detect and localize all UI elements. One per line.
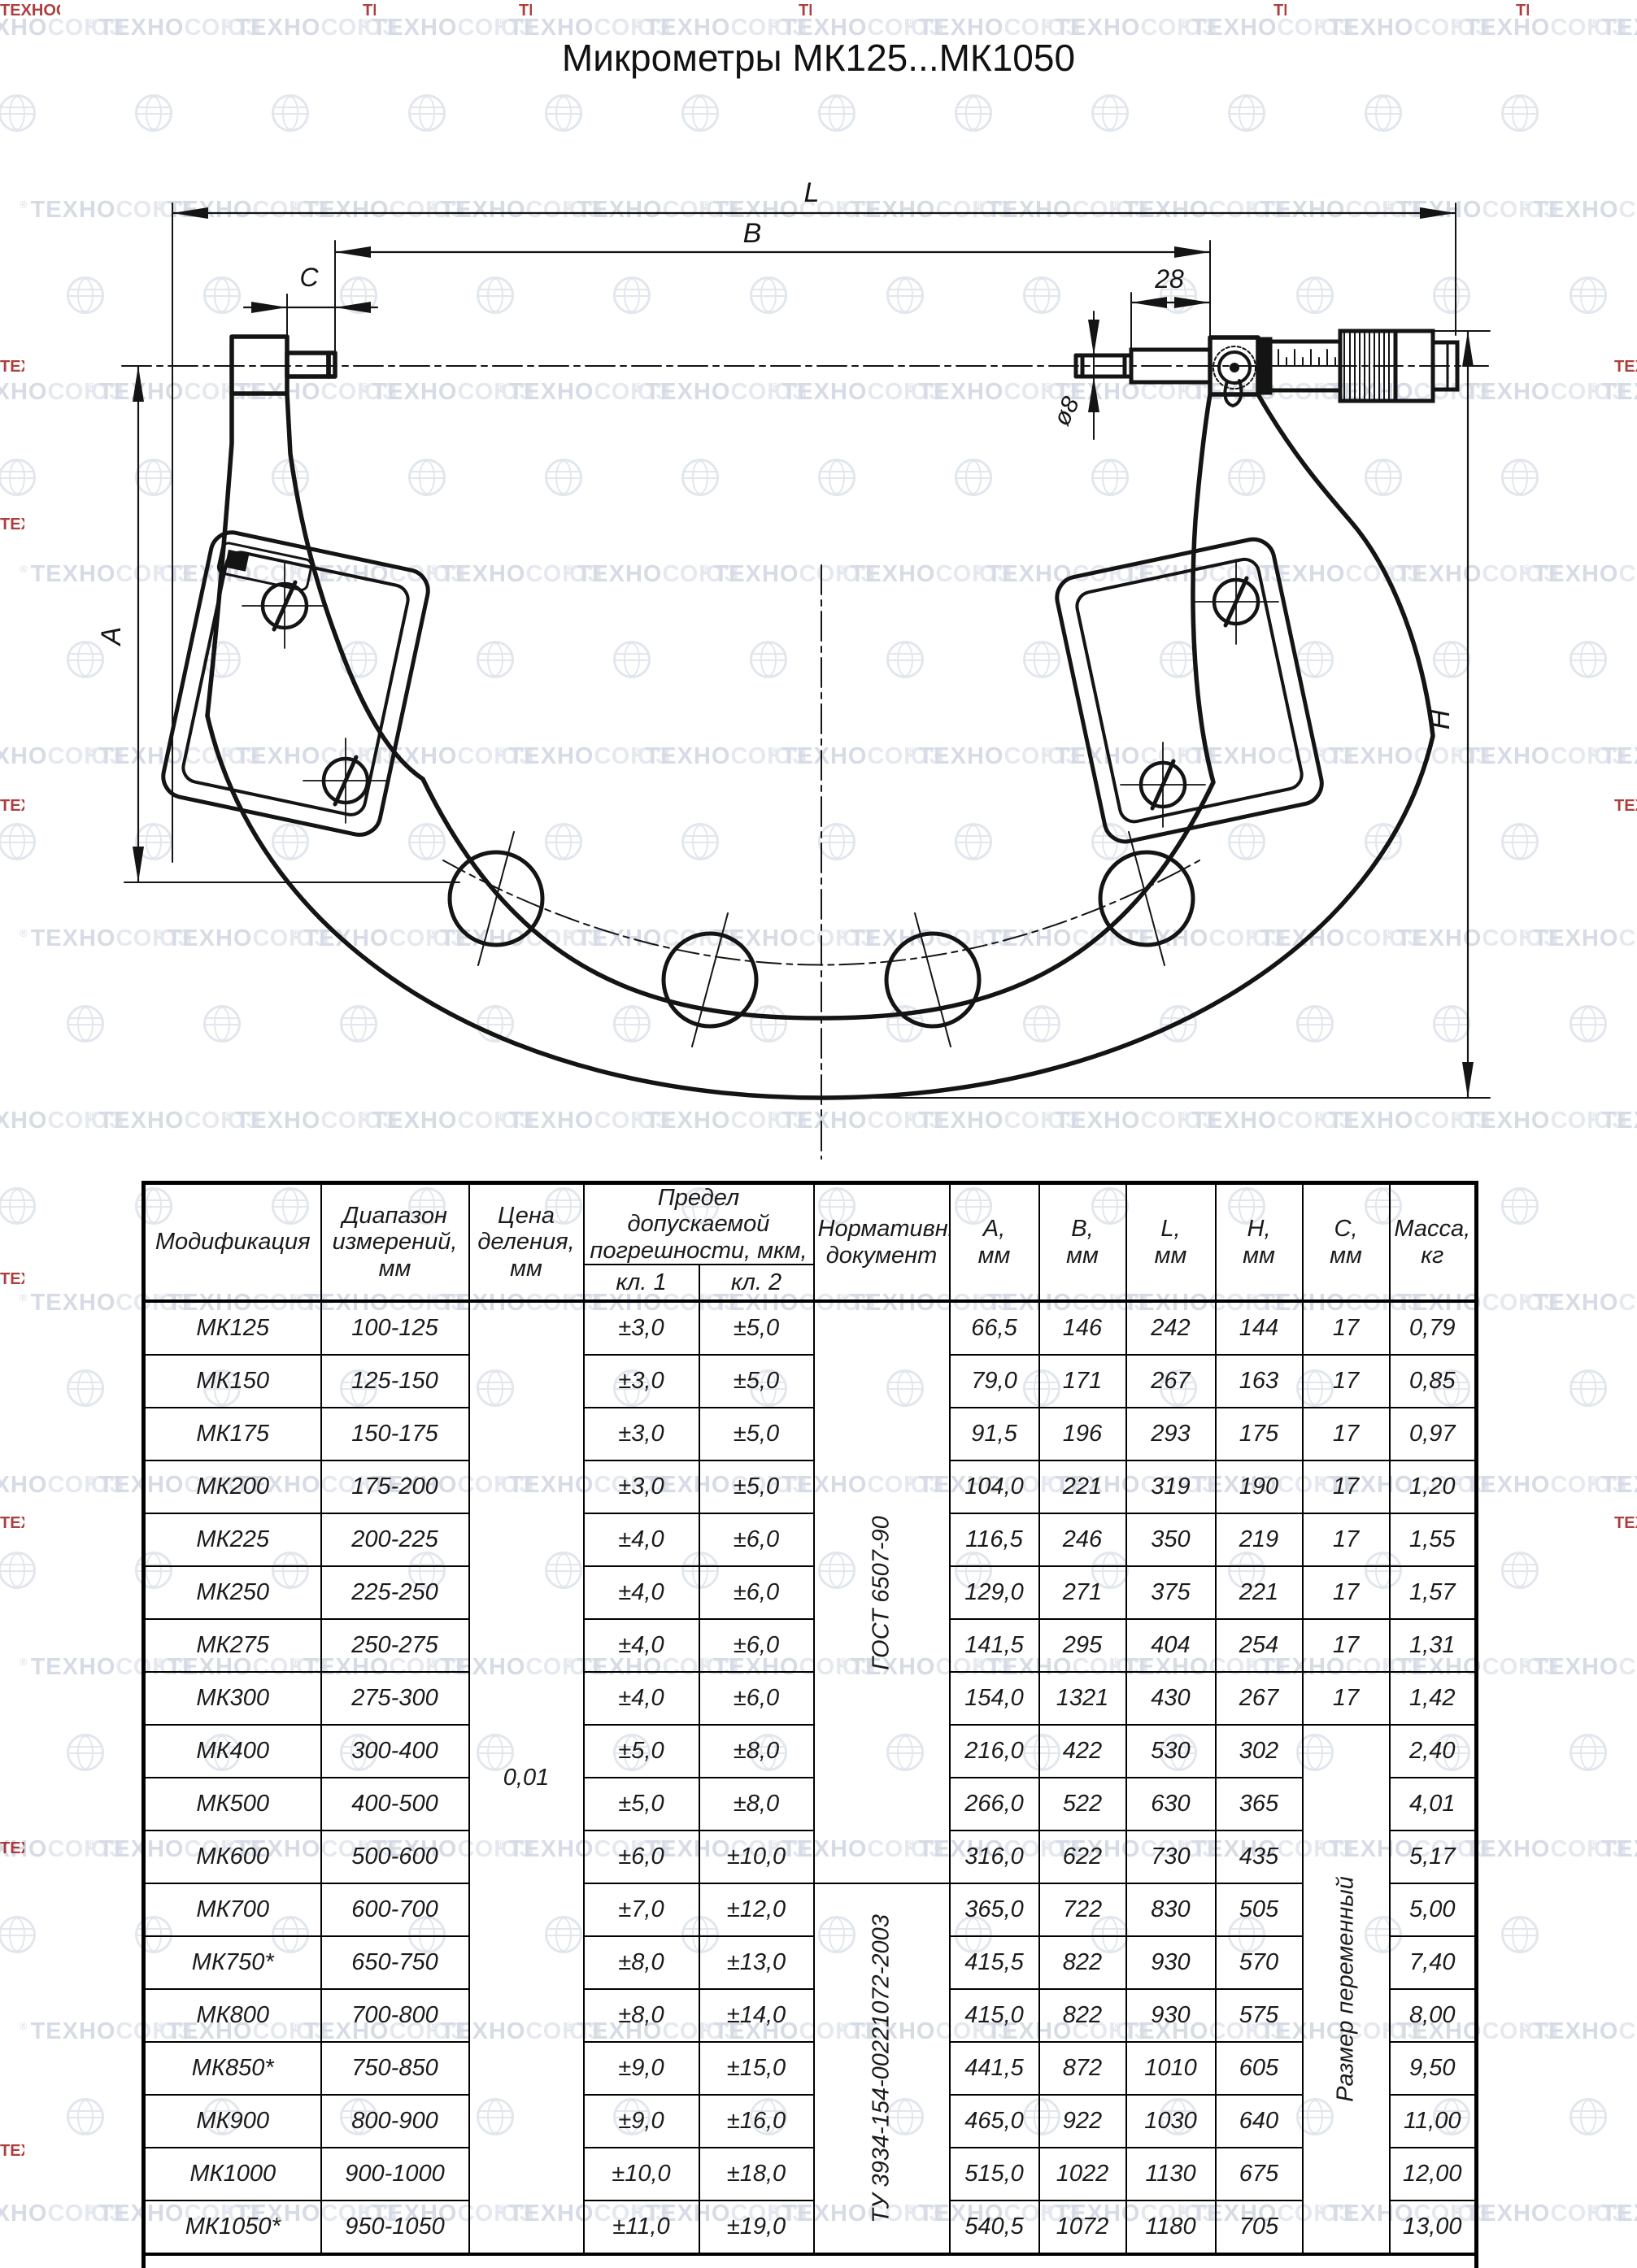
red-watermark-fragment: ТЕХНОСОЮЗ [1614,797,1637,816]
red-watermark-fragment: ТЕХНОСОЮЗ [0,2142,24,2161]
red-watermark-fragment: ТЕХНОСОЮЗ [799,2,812,21]
cell-class1: ±8,0 [584,1936,699,1989]
cell-h: 435 [1216,1831,1303,1883]
anvil-face [329,353,335,377]
watermark-text: ®ТЕХНОСОЮЗ [0,2201,124,2227]
globe-icon [1570,1369,1607,1407]
col-header-division: Цена деления, мм [469,1183,584,1302]
red-watermark-fragment: ТЕХНОСОЮЗ [519,2,532,21]
cell-l: 930 [1126,1989,1216,2042]
cell-range: 150-175 [321,1408,469,1460]
cell-h: 675 [1216,2148,1303,2201]
cell-h: 640 [1216,2095,1303,2148]
cell-mass: 9,50 [1390,2042,1477,2095]
screw [1194,559,1278,644]
cell-model: МК150 [144,1355,321,1408]
cell-model: МК1000 [144,2148,321,2201]
red-watermark-fragment: ТЕХНОСОЮЗ [1273,2,1287,21]
cell-b: 422 [1039,1725,1126,1778]
cell-class1: ±9,0 [584,2095,699,2148]
cell-model: МК850* [144,2042,321,2095]
cell-b: 822 [1039,1936,1126,1989]
cell-l: 319 [1126,1460,1216,1513]
cell-class1: ±7,0 [584,1883,699,1936]
bow-inner-edge [423,394,1213,1018]
dimension-labels: L В С 28 ø8 А Н [96,177,1456,729]
col-header-range: Диапазон измерений, мм [321,1183,469,1302]
cell-a: 116,5 [950,1513,1039,1566]
table-row: МК800700-800±8,0±14,0415,08229305758,00 [144,1989,1477,2042]
cell-h: 705 [1216,2201,1303,2254]
cell-class2: ±5,0 [699,1408,814,1460]
globe-icon [1501,1916,1539,1953]
anvil-tip [287,353,329,377]
red-watermark-fragment: ТЕХНОСОЮЗ [0,1514,24,1534]
cell-c: 17 [1303,1355,1390,1408]
cell-class2: ±15,0 [699,2042,814,2095]
red-watermark-fragment: ТЕХНОСОЮЗ [1614,1514,1637,1534]
table-row: МК400300-400±5,0±8,0216,0422530302Размер… [144,1725,1477,1778]
micrometer-drawing: L В С 28 ø8 А Н [0,0,1637,1171]
cell-b: 271 [1039,1566,1126,1619]
cell-h: 505 [1216,1883,1303,1936]
cell-l: 930 [1126,1936,1216,1989]
doc-gost-label: ГОСТ 6507-90 [869,1516,895,1670]
watermark-text: ®ТЕХНОСОЮЗ [1522,1290,1637,1317]
table-header: Модификация Диапазон измерений, мм Цена … [144,1183,1477,1302]
col-header-error: Предел допускаемой погрешности, мкм, [584,1183,814,1265]
table-body: МК125100-1250,01±3,0±5,0ГОСТ 6507-9066,5… [144,1301,1477,2268]
table-row: МК750*650-750±8,0±13,0415,58229305707,40 [144,1936,1477,1989]
cell-a: 365,0 [950,1883,1039,1936]
col-header-b: В, мм [1039,1183,1126,1302]
sleeve-ticks [1278,350,1335,366]
cell-class2: ±5,0 [699,1301,814,1355]
cell-mass: 0,79 [1390,1301,1477,1355]
table-row: МК250225-250±4,0±6,0129,0271375221171,57 [144,1566,1477,1619]
red-watermark-fragment: ТЕХНОСОЮЗ [1516,2,1529,21]
table-row: МК300275-300±4,0±6,0154,01321430267171,4… [144,1672,1477,1725]
cell-mass: 13,00 [1390,2201,1477,2254]
cell-class1: ±6,0 [584,1831,699,1883]
globe-icon [0,1187,36,1225]
cell-doc-gost: ГОСТ 6507-90 [814,1301,950,1883]
cell-c: 17 [1303,1408,1390,1460]
col-header-h: Н, мм [1216,1183,1303,1302]
cell-range: 700-800 [321,1989,469,2042]
globe-icon [0,1916,36,1953]
cell-class1: ±3,0 [584,1301,699,1355]
cell-class2: ±19,0 [699,2201,814,2254]
cell-range: 900-1000 [321,2148,469,2201]
cell-model: МК750* [144,1936,321,1989]
dim-label-28: 28 [1154,264,1184,294]
cell-a: 441,5 [950,2042,1039,2095]
watermark-text: ®ТЕХНОСОЮЗ [1522,1654,1637,1681]
cell-range: 300-400 [321,1725,469,1778]
table-row: МК1050*950-1050±11,0±19,0540,51072118070… [144,2201,1477,2254]
cell-b: 622 [1039,1831,1126,1883]
cell-mass: 5,00 [1390,1883,1477,1936]
right-insulation-plate [1053,535,1326,845]
cell-l: 1010 [1126,2042,1216,2095]
cell-a: 154,0 [950,1672,1039,1725]
cell-class1: ±4,0 [584,1566,699,1619]
plate-screws [242,559,1278,827]
watermark-text: ®ТЕХНОСОЮЗ [1522,2018,1637,2045]
cell-a: 141,5 [950,1619,1039,1672]
cell-model: МК225 [144,1513,321,1566]
cell-class2: ±5,0 [699,1460,814,1513]
table-footnote: * Микрометры выпускаются по заказу потре… [144,2254,1477,2268]
cell-a: 415,0 [950,1989,1039,2042]
table-row: МК275250-275±4,0±6,0141,5295404254171,31 [144,1619,1477,1672]
cell-class2: ±8,0 [699,1725,814,1778]
col-header-model: Модификация [144,1183,321,1302]
watermark-text: ®ТЕХНОСОЮЗ [0,1472,124,1499]
cell-l: 350 [1126,1513,1216,1566]
cell-range: 275-300 [321,1672,469,1725]
cell-h: 575 [1216,1989,1303,2042]
cell-b: 171 [1039,1355,1126,1408]
cell-l: 404 [1126,1619,1216,1672]
watermark-text: ®ТЕХНОСОЮЗ [1454,1472,1627,1499]
cell-b: 1022 [1039,2148,1126,2201]
table-row: МК125100-1250,01±3,0±5,0ГОСТ 6507-9066,5… [144,1301,1477,1355]
cell-model: МК175 [144,1408,321,1460]
cell-l: 530 [1126,1725,1216,1778]
footnote-row: * Микрометры выпускаются по заказу потре… [144,2254,1477,2268]
red-watermark-fragment: ТЕХНОСОЮЗ [0,358,24,377]
cell-h: 144 [1216,1301,1303,1355]
cell-c: 17 [1303,1619,1390,1672]
cell-mass: 12,00 [1390,2148,1477,2201]
cell-b: 221 [1039,1460,1126,1513]
cell-range: 750-850 [321,2042,469,2095]
cell-a: 91,5 [950,1408,1039,1460]
red-watermark-fragment: ТЕХНОСОЮЗ [0,516,24,535]
cell-mass: 2,40 [1390,1725,1477,1778]
cell-l: 730 [1126,1831,1216,1883]
cell-class1: ±5,0 [584,1778,699,1831]
doc-tu-label: ТУ 3934-154-00221072-2003 [869,1914,895,2223]
table-row: МК150125-150±3,0±5,079,0171267163170,85 [144,1355,1477,1408]
c-variable-label: Размер переменный [1333,1877,1360,2103]
cell-h: 219 [1216,1513,1303,1566]
watermark-text: ®ТЕХНОСОЮЗ [1454,1836,1627,1863]
cell-l: 242 [1126,1301,1216,1355]
table-row: МК1000900-1000±10,0±18,0515,010221130675… [144,2148,1477,2201]
red-watermark-fragment: ТЕХНОСОЮЗ [0,2,60,21]
red-watermark-fragment: ТЕХНОСОЮЗ [0,1270,24,1290]
cell-h: 190 [1216,1460,1303,1513]
cell-mass: 7,40 [1390,1936,1477,1989]
watermark-text: ®ТЕХНОСОЮЗ [1454,2201,1627,2227]
cell-mass: 1,42 [1390,1672,1477,1725]
col-header-class2: кл. 2 [699,1265,814,1301]
cell-model: МК800 [144,1989,321,2042]
cell-range: 800-900 [321,2095,469,2148]
cell-range: 500-600 [321,1831,469,1883]
cell-class2: ±10,0 [699,1831,814,1883]
watermark-text: ®ТЕХНОСОЮЗ [1591,1836,1637,1863]
table-row: МК900800-900±9,0±16,0465,0922103064011,0… [144,2095,1477,2148]
cell-model: МК900 [144,2095,321,2148]
cell-a: 216,0 [950,1725,1039,1778]
cell-mass: 11,00 [1390,2095,1477,2148]
cell-h: 570 [1216,1936,1303,1989]
cell-b: 1321 [1039,1672,1126,1725]
cell-range: 200-225 [321,1513,469,1566]
screw [1121,742,1205,827]
cell-model: МК400 [144,1725,321,1778]
cell-class2: ±18,0 [699,2148,814,2201]
cell-l: 293 [1126,1408,1216,1460]
cell-a: 415,5 [950,1936,1039,1989]
cell-class2: ±6,0 [699,1672,814,1725]
cell-range: 175-200 [321,1460,469,1513]
table-row: МК850*750-850±9,0±15,0441,587210106059,5… [144,2042,1477,2095]
cell-h: 175 [1216,1408,1303,1460]
cell-mass: 8,00 [1390,1989,1477,2042]
col-header-l: L, мм [1126,1183,1216,1302]
cell-range: 950-1050 [321,2201,469,2254]
cell-division-merged: 0,01 [469,1301,584,2254]
cell-class1: ±3,0 [584,1355,699,1408]
cell-model: МК275 [144,1619,321,1672]
cell-class2: ±12,0 [699,1883,814,1936]
cell-a: 316,0 [950,1831,1039,1883]
cell-a: 515,0 [950,2148,1039,2201]
cell-b: 722 [1039,1883,1126,1936]
cell-class1: ±10,0 [584,2148,699,2201]
cell-mass: 1,55 [1390,1513,1477,1566]
cell-class1: ±4,0 [584,1513,699,1566]
cell-class2: ±5,0 [699,1355,814,1408]
cell-mass: 5,17 [1390,1831,1477,1883]
cell-l: 1130 [1126,2148,1216,2201]
table-row: МК500400-500±5,0±8,0266,05226303654,01 [144,1778,1477,1831]
cell-class1: ±9,0 [584,2042,699,2095]
cell-range: 400-500 [321,1778,469,1831]
dim-label-L: L [804,177,820,208]
cell-c: 17 [1303,1301,1390,1355]
cell-model: МК125 [144,1301,321,1355]
cell-c: 17 [1303,1513,1390,1566]
cell-a: 129,0 [950,1566,1039,1619]
col-header-mass: Масса, кг [1390,1183,1477,1302]
globe-icon [67,2098,104,2135]
cell-class2: ±6,0 [699,1566,814,1619]
table-row: МК700600-700±7,0±12,0ТУ 3934-154-0022107… [144,1883,1477,1936]
cell-b: 522 [1039,1778,1126,1831]
cell-class1: ±3,0 [584,1408,699,1460]
cell-model: МК700 [144,1883,321,1936]
cell-model: МК1050* [144,2201,321,2254]
cell-h: 605 [1216,2042,1303,2095]
cell-a: 465,0 [950,2095,1039,2148]
cell-b: 922 [1039,2095,1126,2148]
cell-h: 365 [1216,1778,1303,1831]
cell-l: 267 [1126,1355,1216,1408]
cell-class1: ±5,0 [584,1725,699,1778]
dim-label-C: С [299,263,319,292]
globe-icon [1501,1187,1539,1225]
watermark-text: ®ТЕХНОСОЮЗ [1591,1472,1637,1499]
cell-mass: 1,57 [1390,1566,1477,1619]
cell-a: 104,0 [950,1460,1039,1513]
cell-h: 163 [1216,1355,1303,1408]
frame-outline [207,337,1433,1098]
cell-b: 872 [1039,2042,1126,2095]
cell-class2: ±13,0 [699,1936,814,1989]
document-page: ®ТЕХНОСОЮЗ®ТЕХНОСОЮЗ®ТЕХНОСОЮЗ®ТЕХНОСОЮЗ… [0,0,1637,2268]
cell-a: 66,5 [950,1301,1039,1355]
cell-class2: ±6,0 [699,1513,814,1566]
cell-model: МК300 [144,1672,321,1725]
cell-mass: 4,01 [1390,1778,1477,1831]
dim-label-dia8: ø8 [1048,393,1085,430]
red-watermark-fragment: ТЕХНОСОЮЗ [0,1839,24,1859]
red-watermark-fragment: ТЕХНОСОЮЗ [1614,358,1637,377]
cell-h: 254 [1216,1619,1303,1672]
cell-class2: ±16,0 [699,2095,814,2148]
dim-label-A: А [96,627,127,647]
cell-class2: ±14,0 [699,1989,814,2042]
globe-icon [67,1734,104,1771]
cell-mass: 1,31 [1390,1619,1477,1672]
table-row: МК200175-200±3,0±5,0104,0221319190171,20 [144,1460,1477,1513]
cell-h: 267 [1216,1672,1303,1725]
cell-h: 221 [1216,1566,1303,1619]
cell-model: МК600 [144,1831,321,1883]
cell-b: 295 [1039,1619,1126,1672]
table-row: МК225200-225±4,0±6,0116,5246350219171,55 [144,1513,1477,1566]
cell-c-variable: Размер переменный [1303,1725,1390,2254]
cell-l: 630 [1126,1778,1216,1831]
cell-range: 250-275 [321,1619,469,1672]
red-watermark-fragment: ТЕХНОСОЮЗ [0,797,24,816]
cell-a: 266,0 [950,1778,1039,1831]
red-watermark-fragment: ТЕХНОСОЮЗ [363,2,376,21]
globe-icon [1570,2098,1607,2135]
cell-a: 79,0 [950,1355,1039,1408]
cell-c: 17 [1303,1672,1390,1725]
left-insulation-plate [159,529,432,838]
globe-icon [0,1552,36,1589]
col-header-c: С, мм [1303,1183,1390,1302]
cell-l: 430 [1126,1672,1216,1725]
cell-b: 246 [1039,1513,1126,1566]
cell-model: МК200 [144,1460,321,1513]
cell-c: 17 [1303,1566,1390,1619]
col-header-a: А, мм [950,1183,1039,1302]
cell-range: 125-150 [321,1355,469,1408]
cell-b: 146 [1039,1301,1126,1355]
cell-class1: ±11,0 [584,2201,699,2254]
cell-range: 100-125 [321,1301,469,1355]
cell-class2: ±6,0 [699,1619,814,1672]
cell-model: МК500 [144,1778,321,1831]
globe-icon [1501,1552,1539,1589]
col-header-doc: Нормативный документ [814,1183,950,1302]
cell-doc-tu: ТУ 3934-154-00221072-2003 [814,1883,950,2254]
cell-b: 1072 [1039,2201,1126,2254]
cell-a: 540,5 [950,2201,1039,2254]
cell-mass: 1,20 [1390,1460,1477,1513]
watermark-text: ®ТЕХНОСОЮЗ [1591,2201,1637,2227]
table-row: МК600500-600±6,0±10,0316,06227304355,17 [144,1831,1477,1883]
spec-table-wrap: Модификация Диапазон измерений, мм Цена … [141,1181,1478,2268]
cell-class1: ±4,0 [584,1672,699,1725]
extension-lines [124,203,1490,1098]
cell-model: МК250 [144,1566,321,1619]
globe-icon [1570,1734,1607,1771]
cell-mass: 0,85 [1390,1355,1477,1408]
cell-mass: 0,97 [1390,1408,1477,1460]
cell-class1: ±8,0 [584,1989,699,2042]
cell-range: 650-750 [321,1936,469,1989]
cell-class1: ±4,0 [584,1619,699,1672]
cell-l: 375 [1126,1566,1216,1619]
cell-l: 830 [1126,1883,1216,1936]
spec-table: Модификация Диапазон измерений, мм Цена … [141,1181,1478,2268]
cell-range: 225-250 [321,1566,469,1619]
cell-range: 600-700 [321,1883,469,1936]
table-row: МК175150-175±3,0±5,091,5196293175170,97 [144,1408,1477,1460]
cell-b: 196 [1039,1408,1126,1460]
globe-icon [67,1369,104,1407]
dim-label-B: В [743,218,762,249]
cell-h: 302 [1216,1725,1303,1778]
col-header-class1: кл. 1 [584,1265,699,1301]
cell-class1: ±3,0 [584,1460,699,1513]
cell-l: 1030 [1126,2095,1216,2148]
cell-class2: ±8,0 [699,1778,814,1831]
cell-c: 17 [1303,1460,1390,1513]
cell-l: 1180 [1126,2201,1216,2254]
cell-b: 822 [1039,1989,1126,2042]
